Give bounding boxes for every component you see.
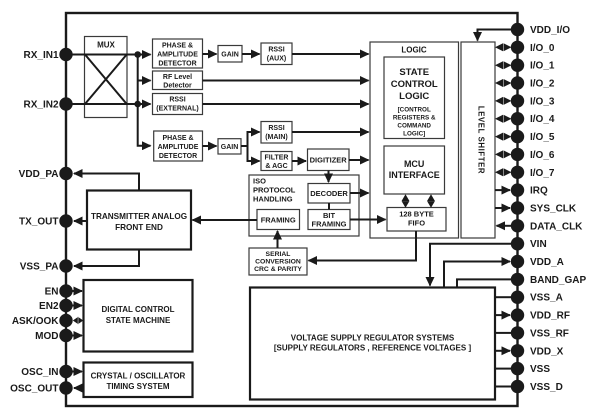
svg-text:HANDLING: HANDLING	[253, 195, 293, 204]
svg-text:I/O_3: I/O_3	[530, 96, 555, 107]
svg-text:TIMING SYSTEM: TIMING SYSTEM	[106, 382, 169, 391]
svg-text:GAIN: GAIN	[221, 52, 239, 59]
svg-text:SYS_CLK: SYS_CLK	[530, 204, 577, 215]
svg-text:Detector: Detector	[163, 83, 192, 90]
svg-text:FIFO: FIFO	[408, 219, 425, 228]
svg-text:EN: EN	[45, 287, 59, 298]
svg-text:I/O_0: I/O_0	[530, 43, 555, 54]
svg-text:VDD_I/O: VDD_I/O	[530, 25, 570, 36]
svg-text:COMMAND: COMMAND	[397, 123, 431, 130]
svg-text:DECODER: DECODER	[310, 189, 348, 198]
svg-text:VDD_A: VDD_A	[530, 257, 564, 268]
svg-text:VDD_RF: VDD_RF	[530, 311, 570, 322]
svg-text:(AUX): (AUX)	[267, 56, 286, 63]
svg-text:[SUPPLY REGULATORS , REFERENCE: [SUPPLY REGULATORS , REFERENCE VOLTAGES …	[274, 344, 472, 353]
svg-text:VIN: VIN	[530, 239, 547, 250]
svg-text:I/O_7: I/O_7	[530, 168, 555, 179]
svg-text:MCU: MCU	[404, 159, 425, 169]
svg-text:RSSI: RSSI	[268, 125, 284, 132]
svg-text:VOLTAGE SUPPLY REGULATOR SYSTE: VOLTAGE SUPPLY REGULATOR SYSTEMS	[291, 334, 455, 343]
svg-text:(EXTERNAL): (EXTERNAL)	[156, 106, 198, 113]
svg-text:FRONT END: FRONT END	[115, 223, 163, 232]
svg-text:VSS: VSS	[530, 364, 550, 375]
svg-text:OSC_IN: OSC_IN	[21, 367, 58, 378]
svg-text:IRQ: IRQ	[530, 186, 548, 197]
svg-text:I/O_6: I/O_6	[530, 150, 555, 161]
svg-text:AMPLITUDE: AMPLITUDE	[157, 52, 198, 59]
svg-text:128 BYTE: 128 BYTE	[399, 210, 434, 219]
svg-text:OSC_OUT: OSC_OUT	[10, 384, 58, 395]
svg-text:VSS_RF: VSS_RF	[530, 328, 569, 339]
svg-text:VDD_X: VDD_X	[530, 346, 564, 357]
svg-text:AMPLITUDE: AMPLITUDE	[158, 144, 199, 151]
svg-text:VDD_PA: VDD_PA	[19, 169, 59, 180]
svg-text:DIGITIZER: DIGITIZER	[310, 156, 348, 165]
svg-text:PHASE &: PHASE &	[162, 135, 193, 142]
svg-text:VSS_A: VSS_A	[530, 293, 563, 304]
svg-text:I/O_5: I/O_5	[530, 132, 555, 143]
svg-text:FRAMING: FRAMING	[312, 220, 347, 229]
svg-text:(MAIN): (MAIN)	[265, 134, 288, 141]
svg-text:RF Level: RF Level	[163, 74, 192, 81]
svg-text:[CONTROL: [CONTROL	[398, 107, 431, 114]
svg-text:GAIN: GAIN	[221, 144, 239, 151]
svg-text:INTERFACE: INTERFACE	[389, 170, 440, 180]
svg-text:FILTER: FILTER	[265, 155, 289, 162]
svg-text:RX_IN2: RX_IN2	[23, 100, 58, 111]
svg-text:TRANSMITTER ANALOG: TRANSMITTER ANALOG	[91, 212, 187, 221]
svg-text:MUX: MUX	[97, 41, 115, 50]
svg-text:DIGITAL CONTROL: DIGITAL CONTROL	[101, 305, 174, 314]
svg-text:STATE: STATE	[399, 67, 429, 78]
svg-text:STATE MACHINE: STATE MACHINE	[106, 316, 171, 325]
svg-text:RSSI: RSSI	[169, 97, 185, 104]
svg-text:DETECTOR: DETECTOR	[158, 61, 196, 68]
svg-text:LOGIC: LOGIC	[401, 46, 427, 55]
svg-text:DETECTOR: DETECTOR	[159, 153, 197, 160]
svg-text:BAND_GAP: BAND_GAP	[530, 275, 586, 286]
svg-text:FRAMING: FRAMING	[261, 216, 296, 225]
svg-text:ASK/OOK: ASK/OOK	[12, 316, 59, 327]
svg-text:LEVEL SHIFTER: LEVEL SHIFTER	[477, 106, 486, 174]
svg-text:CRYSTAL / OSCILLATOR: CRYSTAL / OSCILLATOR	[91, 372, 186, 381]
svg-text:REGISTERS &: REGISTERS &	[393, 115, 436, 122]
svg-text:ISO: ISO	[253, 177, 266, 186]
svg-text:TX_OUT: TX_OUT	[19, 217, 58, 228]
svg-text:I/O_2: I/O_2	[530, 79, 555, 90]
svg-text:RX_IN1: RX_IN1	[23, 50, 58, 61]
svg-text:CONVERSION: CONVERSION	[255, 259, 301, 266]
svg-text:LOGIC]: LOGIC]	[403, 131, 425, 138]
svg-text:DATA_CLK: DATA_CLK	[530, 221, 583, 232]
svg-text:I/O_4: I/O_4	[530, 114, 555, 125]
svg-text:LOGIC: LOGIC	[399, 91, 429, 102]
svg-text:MOD: MOD	[35, 331, 58, 342]
svg-text:CONTROL: CONTROL	[391, 79, 438, 90]
svg-text:VSS_D: VSS_D	[530, 382, 563, 393]
svg-text:& AGC: & AGC	[265, 163, 287, 170]
svg-text:RSSI: RSSI	[268, 47, 284, 54]
svg-text:PHASE &: PHASE &	[162, 43, 193, 50]
svg-text:I/O_1: I/O_1	[530, 61, 555, 72]
svg-text:EN2: EN2	[39, 301, 59, 312]
svg-text:CRC & PARITY: CRC & PARITY	[254, 266, 302, 273]
svg-text:VSS_PA: VSS_PA	[20, 262, 59, 273]
svg-text:SERIAL: SERIAL	[266, 251, 291, 258]
svg-text:PROTOCOL: PROTOCOL	[253, 186, 296, 195]
